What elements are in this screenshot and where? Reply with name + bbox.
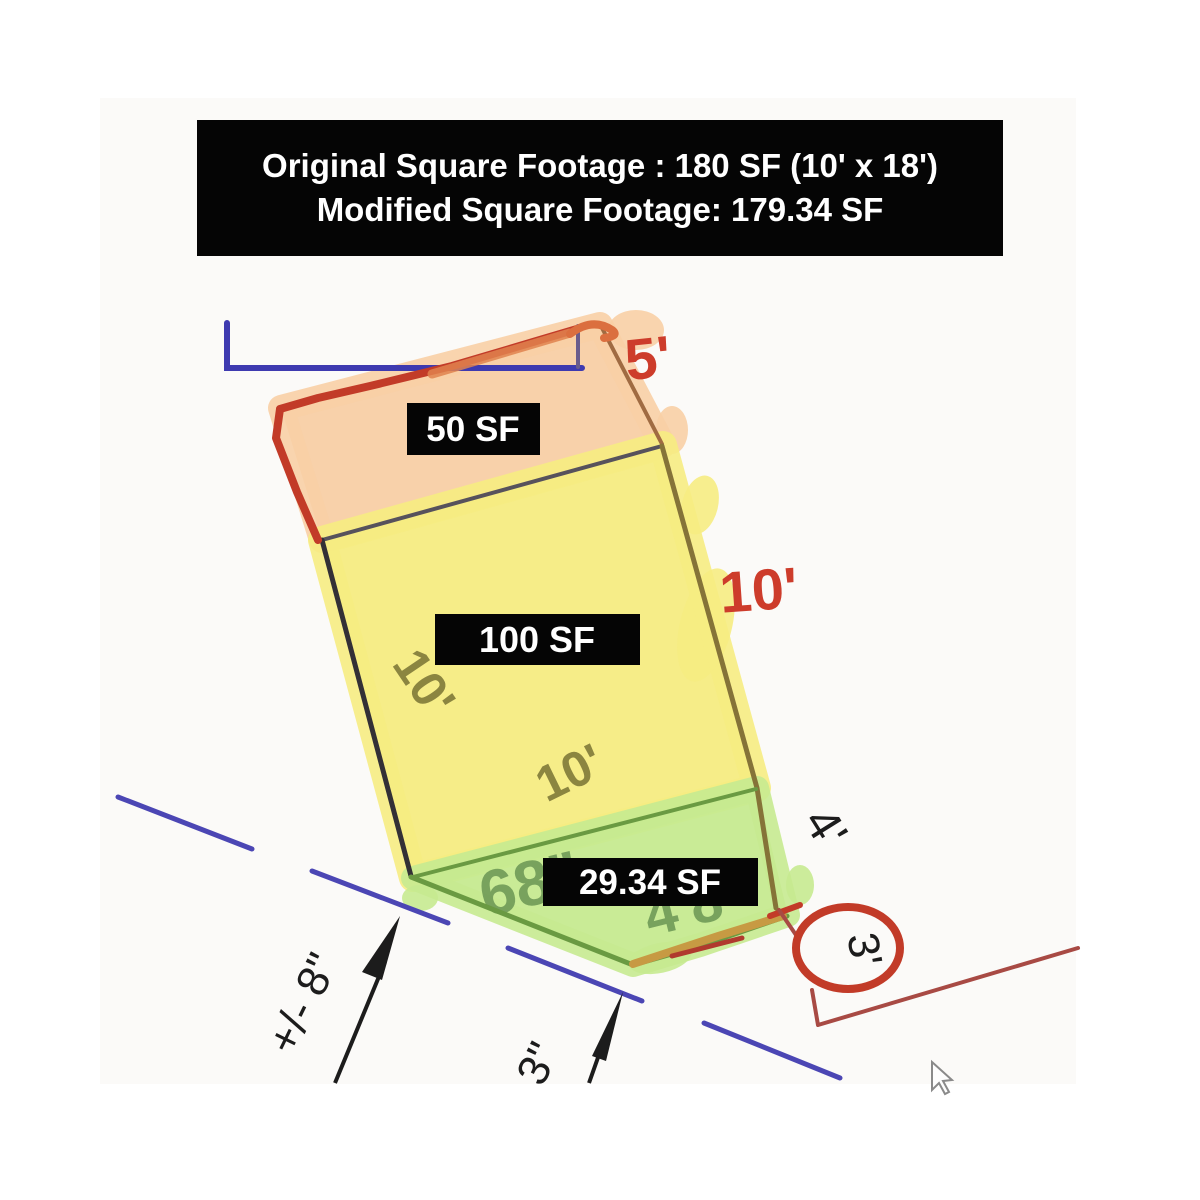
label-text: 29.34 SF [579, 863, 721, 902]
summary-banner: Original Square Footage : 180 SF (10' x … [197, 120, 1003, 256]
banner-line-modified: Modified Square Footage: 179.34 SF [317, 192, 884, 228]
banner-line-original: Original Square Footage : 180 SF (10' x … [262, 148, 938, 184]
main-side-dimension: 10' [717, 555, 800, 625]
strip-width-dimension: 5' [622, 324, 675, 393]
label-text: 50 SF [426, 410, 519, 449]
screenshot-page: 68" 4'8 [0, 0, 1200, 1200]
area-label-strip: 50 SF [407, 403, 540, 455]
area-label-main: 100 SF [435, 614, 640, 665]
green-blob [786, 865, 814, 905]
area-label-wedge: 29.34 SF [543, 858, 758, 906]
label-text: 100 SF [479, 619, 595, 660]
